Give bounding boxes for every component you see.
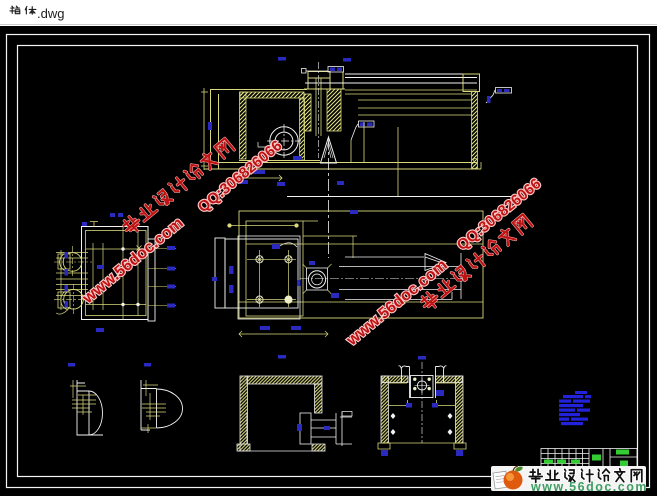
svg-text:www.56doc.com: www.56doc.com [530, 480, 648, 494]
svg-text:.dwg: .dwg [37, 6, 64, 21]
